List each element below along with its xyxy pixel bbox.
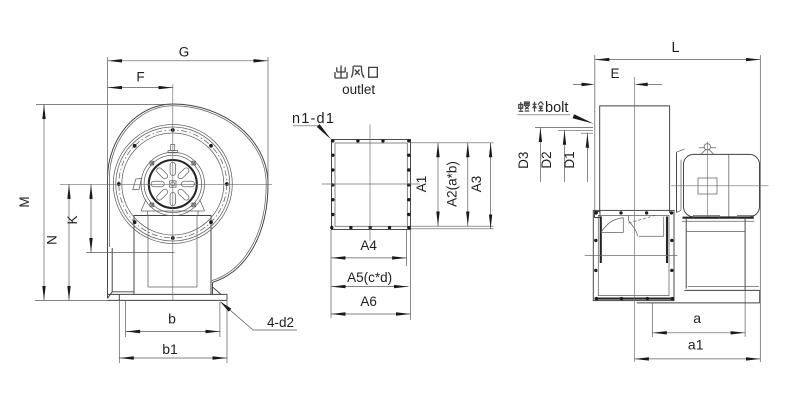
- svg-text:4-d2: 4-d2: [267, 315, 294, 330]
- svg-text:G: G: [179, 45, 190, 60]
- svg-text:a: a: [693, 310, 701, 326]
- svg-text:A4: A4: [360, 238, 377, 253]
- svg-text:K: K: [65, 215, 80, 224]
- svg-text:n1-d1: n1-d1: [292, 111, 335, 127]
- svg-text:L: L: [671, 40, 679, 56]
- svg-text:b1: b1: [162, 341, 178, 357]
- svg-text:A1: A1: [414, 176, 429, 193]
- svg-text:a1: a1: [688, 336, 704, 352]
- svg-text:F: F: [136, 70, 144, 85]
- svg-text:N: N: [45, 235, 60, 245]
- svg-text:A5(c*d): A5(c*d): [347, 270, 392, 285]
- svg-text:outlet: outlet: [342, 82, 375, 97]
- svg-text:b: b: [168, 311, 176, 327]
- svg-text:D3: D3: [516, 152, 531, 169]
- svg-text:A3: A3: [469, 176, 484, 193]
- svg-text:D1: D1: [562, 151, 577, 168]
- svg-text:D2: D2: [539, 151, 554, 168]
- svg-text:M: M: [17, 196, 32, 207]
- svg-text:A6: A6: [360, 294, 377, 309]
- svg-text:bolt: bolt: [545, 100, 568, 116]
- svg-text:E: E: [610, 66, 619, 81]
- svg-text:A2(a*b): A2(a*b): [444, 161, 459, 207]
